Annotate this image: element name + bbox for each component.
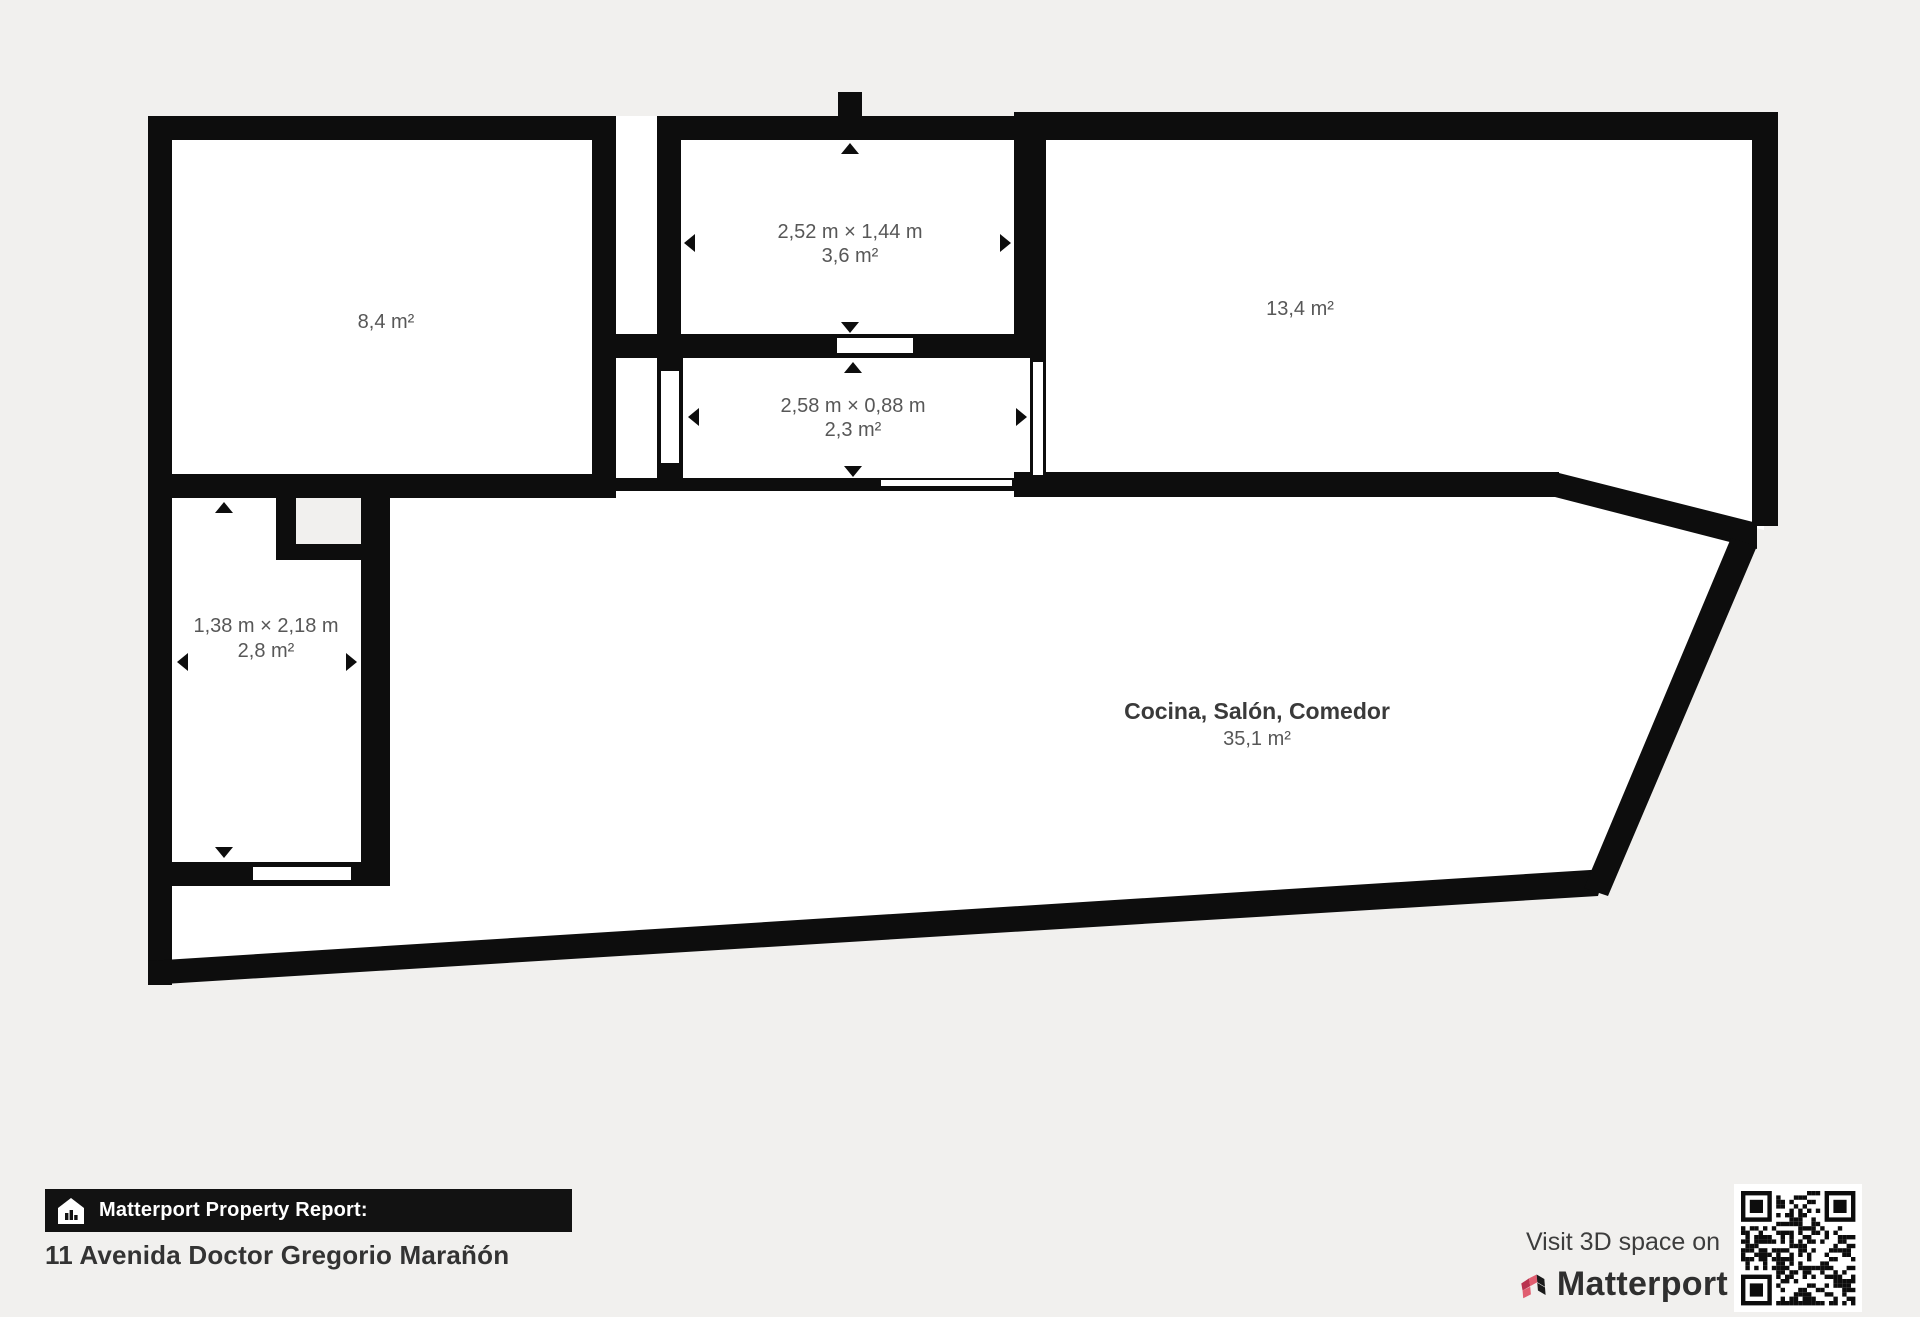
room-interiors (160, 116, 1764, 968)
room-d-dimensions: 1,38 m × 2,18 m (193, 615, 338, 637)
room-a-floor (160, 128, 604, 486)
visit-3d-text: Visit 3D space on (1518, 1228, 1728, 1257)
door-hallway-right (1032, 361, 1044, 476)
floor-plan: 8,4 m² 2,52 m × 1,44 m 3,6 m² 13,4 m² 2,… (0, 0, 1920, 1280)
entry-strip-lower-floor (616, 358, 657, 480)
hallway-area: 2,3 m² (825, 419, 882, 441)
room-d-area: 2,8 m² (238, 640, 295, 662)
room-b-dimensions: 2,52 m × 1,44 m (777, 221, 922, 243)
opening-hallway-bottom (880, 479, 1013, 487)
report-banner: Matterport Property Report: (45, 1189, 572, 1232)
door-room-d (252, 866, 352, 881)
room-b-area: 3,6 m² (822, 245, 879, 267)
property-report-page: { "colors": { "background": "#f1f0ee", "… (0, 0, 1920, 1280)
door-hallway-left (660, 370, 680, 464)
entry-strip-floor (616, 116, 657, 338)
report-banner-label: Matterport Property Report: (99, 1199, 368, 1222)
brand-row: Matterport (1520, 1265, 1728, 1311)
shaft-void (296, 498, 361, 544)
house-report-icon (57, 1197, 85, 1225)
room-a-area: 8,4 m² (358, 311, 415, 333)
window-room-b (836, 337, 914, 354)
visit-3d-block: Visit 3D space on Matterport (1518, 1228, 1728, 1311)
living-room-area: 35,1 m² (1223, 728, 1291, 750)
matterport-wordmark: Matterport (1557, 1265, 1728, 1304)
room-c-area: 13,4 m² (1266, 298, 1334, 320)
matterport-logo-icon (1520, 1265, 1547, 1311)
living-room-name: Cocina, Salón, Comedor (1124, 698, 1390, 724)
room-c-floor (1030, 130, 1764, 530)
hallway-dimensions: 2,58 m × 0,88 m (780, 395, 925, 417)
qr-code (1734, 1184, 1862, 1312)
property-address: 11 Avenida Doctor Gregorio Marañón (45, 1240, 509, 1271)
